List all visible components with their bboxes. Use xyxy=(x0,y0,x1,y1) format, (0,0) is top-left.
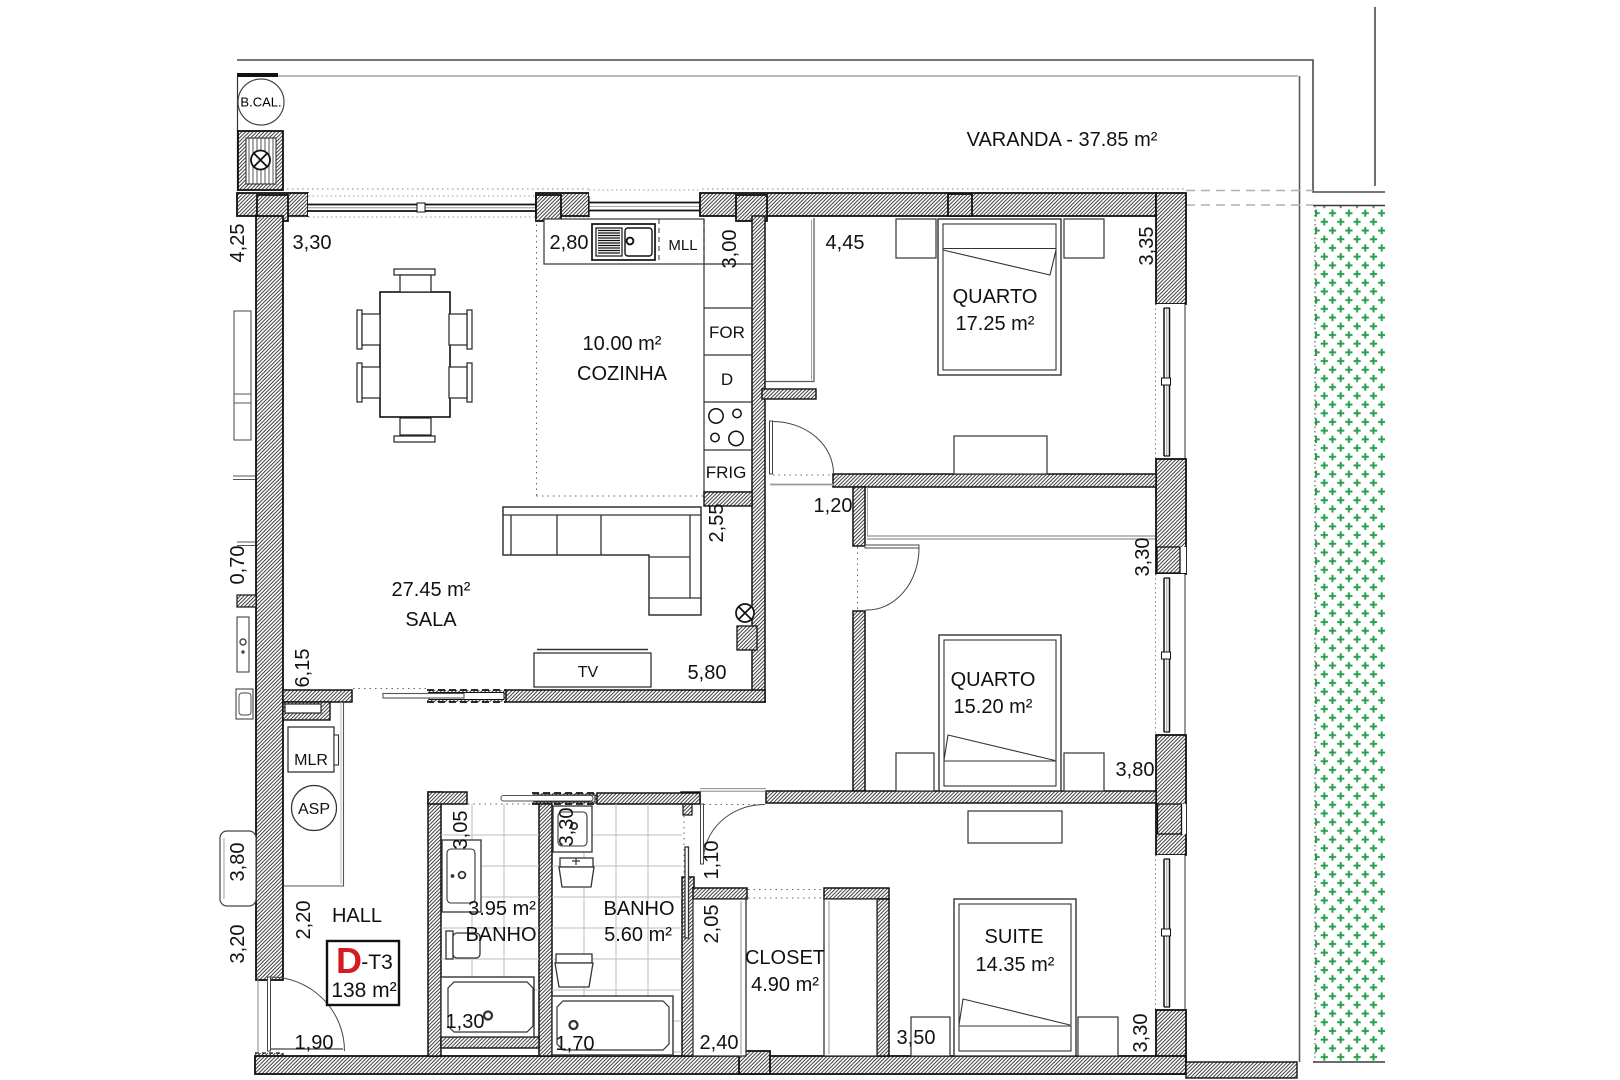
svg-text:3.95 m²: 3.95 m² xyxy=(468,898,536,920)
svg-text:1,90: 1,90 xyxy=(295,1032,334,1054)
svg-text:B.CAL.: B.CAL. xyxy=(240,95,281,110)
svg-text:17.25 m²: 17.25 m² xyxy=(956,313,1035,335)
svg-text:3,50: 3,50 xyxy=(897,1027,936,1049)
svg-text:14.35 m²: 14.35 m² xyxy=(976,954,1055,976)
svg-text:1,70: 1,70 xyxy=(556,1033,595,1055)
svg-text:4,25: 4,25 xyxy=(227,224,249,263)
svg-text:-T3: -T3 xyxy=(361,951,393,974)
svg-text:CLOSET: CLOSET xyxy=(745,947,825,969)
svg-text:TV: TV xyxy=(578,664,599,681)
svg-text:5.60 m²: 5.60 m² xyxy=(604,924,672,946)
svg-text:3,80: 3,80 xyxy=(1116,759,1155,781)
svg-text:D: D xyxy=(336,940,362,981)
svg-text:3,30: 3,30 xyxy=(293,232,332,254)
svg-text:2,05: 2,05 xyxy=(701,905,723,944)
svg-text:2,55: 2,55 xyxy=(706,504,728,543)
svg-text:10.00 m²: 10.00 m² xyxy=(583,333,662,355)
svg-text:15.20 m²: 15.20 m² xyxy=(954,696,1033,718)
svg-text:3,30: 3,30 xyxy=(1132,538,1154,577)
svg-text:QUARTO: QUARTO xyxy=(951,669,1036,691)
svg-text:3,80: 3,80 xyxy=(227,843,249,882)
svg-text:6,15: 6,15 xyxy=(292,649,314,688)
svg-text:FOR: FOR xyxy=(709,323,745,342)
svg-text:ASP: ASP xyxy=(298,801,330,818)
svg-text:3,00: 3,00 xyxy=(719,230,741,269)
svg-text:3,35: 3,35 xyxy=(1136,227,1158,266)
svg-text:HALL: HALL xyxy=(332,905,382,927)
svg-text:2,40: 2,40 xyxy=(700,1032,739,1054)
svg-text:5,80: 5,80 xyxy=(688,662,727,684)
svg-text:D: D xyxy=(721,370,733,389)
svg-text:3,05: 3,05 xyxy=(450,811,472,850)
svg-text:2,80: 2,80 xyxy=(550,232,589,254)
svg-text:4.90 m²: 4.90 m² xyxy=(751,974,819,996)
svg-text:QUARTO: QUARTO xyxy=(953,286,1038,308)
svg-text:MLL: MLL xyxy=(668,237,697,254)
svg-text:0,70: 0,70 xyxy=(227,546,249,585)
svg-text:3,30: 3,30 xyxy=(556,808,578,847)
svg-text:1,30: 1,30 xyxy=(446,1011,485,1033)
svg-text:SALA: SALA xyxy=(405,609,457,631)
svg-text:4,45: 4,45 xyxy=(826,232,865,254)
svg-text:3,20: 3,20 xyxy=(227,925,249,964)
svg-text:2,20: 2,20 xyxy=(293,901,315,940)
svg-text:1,20: 1,20 xyxy=(814,495,853,517)
svg-text:3,30: 3,30 xyxy=(1130,1014,1152,1053)
svg-text:BANHO: BANHO xyxy=(465,924,536,946)
svg-text:27.45 m²: 27.45 m² xyxy=(392,579,471,601)
svg-text:COZINHA: COZINHA xyxy=(577,363,668,385)
svg-text:MLR: MLR xyxy=(294,752,328,769)
svg-text:138 m²: 138 m² xyxy=(331,979,396,1002)
svg-text:SUITE: SUITE xyxy=(985,926,1044,948)
svg-text:FRIG: FRIG xyxy=(706,463,747,482)
svg-text:VARANDA - 37.85 m²: VARANDA - 37.85 m² xyxy=(967,129,1158,151)
svg-text:1,10: 1,10 xyxy=(701,841,723,880)
svg-text:BANHO: BANHO xyxy=(603,898,674,920)
